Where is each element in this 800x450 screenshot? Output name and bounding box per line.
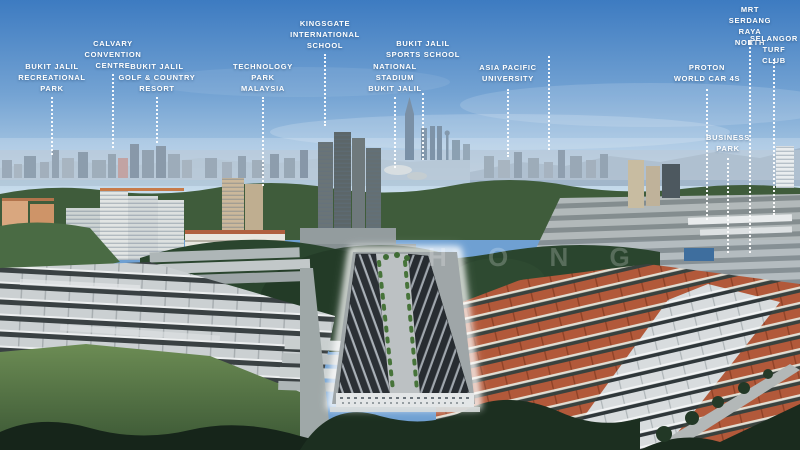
leader-line-bukit-jalil-sports-school (422, 93, 424, 160)
landmark-label-bukit-jalil-golf-country-resort: BUKIT JALIL GOLF & COUNTRY RESORT (118, 61, 195, 94)
leader-line-city-skyline-pointer (548, 56, 550, 150)
landmark-label-kingsgate-international-school: KINGSGATE INTERNATIONAL SCHOOL (290, 18, 360, 51)
leader-line-business-park (727, 158, 729, 253)
landmark-label-business-park: BUSINESS PARK (706, 132, 750, 154)
leader-line-bukit-jalil-recreational-park (51, 97, 53, 155)
leader-line-kingsgate-international-school (324, 54, 326, 126)
leader-line-proton-world-car-4s (706, 89, 708, 220)
leader-line-technology-park-malaysia (262, 97, 264, 186)
aerial-marketing-view: H O N G BUKIT JALIL RECREATIONAL PARKCAL… (0, 0, 800, 450)
landmark-label-technology-park-malaysia: TECHNOLOGY PARK MALAYSIA (233, 61, 293, 94)
leader-line-calvary-convention-centre (112, 74, 114, 148)
landmark-label-national-stadium-bukit-jalil: NATIONAL STADIUM BUKIT JALIL (368, 61, 422, 94)
landmark-label-proton-world-car-4s: PROTON WORLD CAR 4S (674, 62, 740, 84)
leader-line-asia-pacific-university (507, 89, 509, 157)
landmark-label-asia-pacific-university: ASIA PACIFIC UNIVERSITY (479, 62, 537, 84)
landmark-annotations: BUKIT JALIL RECREATIONAL PARKCALVARY CON… (0, 0, 800, 450)
leader-line-selangor-turf-club (773, 59, 775, 215)
leader-line-bukit-jalil-golf-country-resort (156, 97, 158, 143)
leader-line-national-stadium-bukit-jalil (394, 97, 396, 168)
landmark-label-bukit-jalil-sports-school: BUKIT JALIL SPORTS SCHOOL (386, 38, 460, 60)
landmark-label-bukit-jalil-recreational-park: BUKIT JALIL RECREATIONAL PARK (18, 61, 85, 94)
